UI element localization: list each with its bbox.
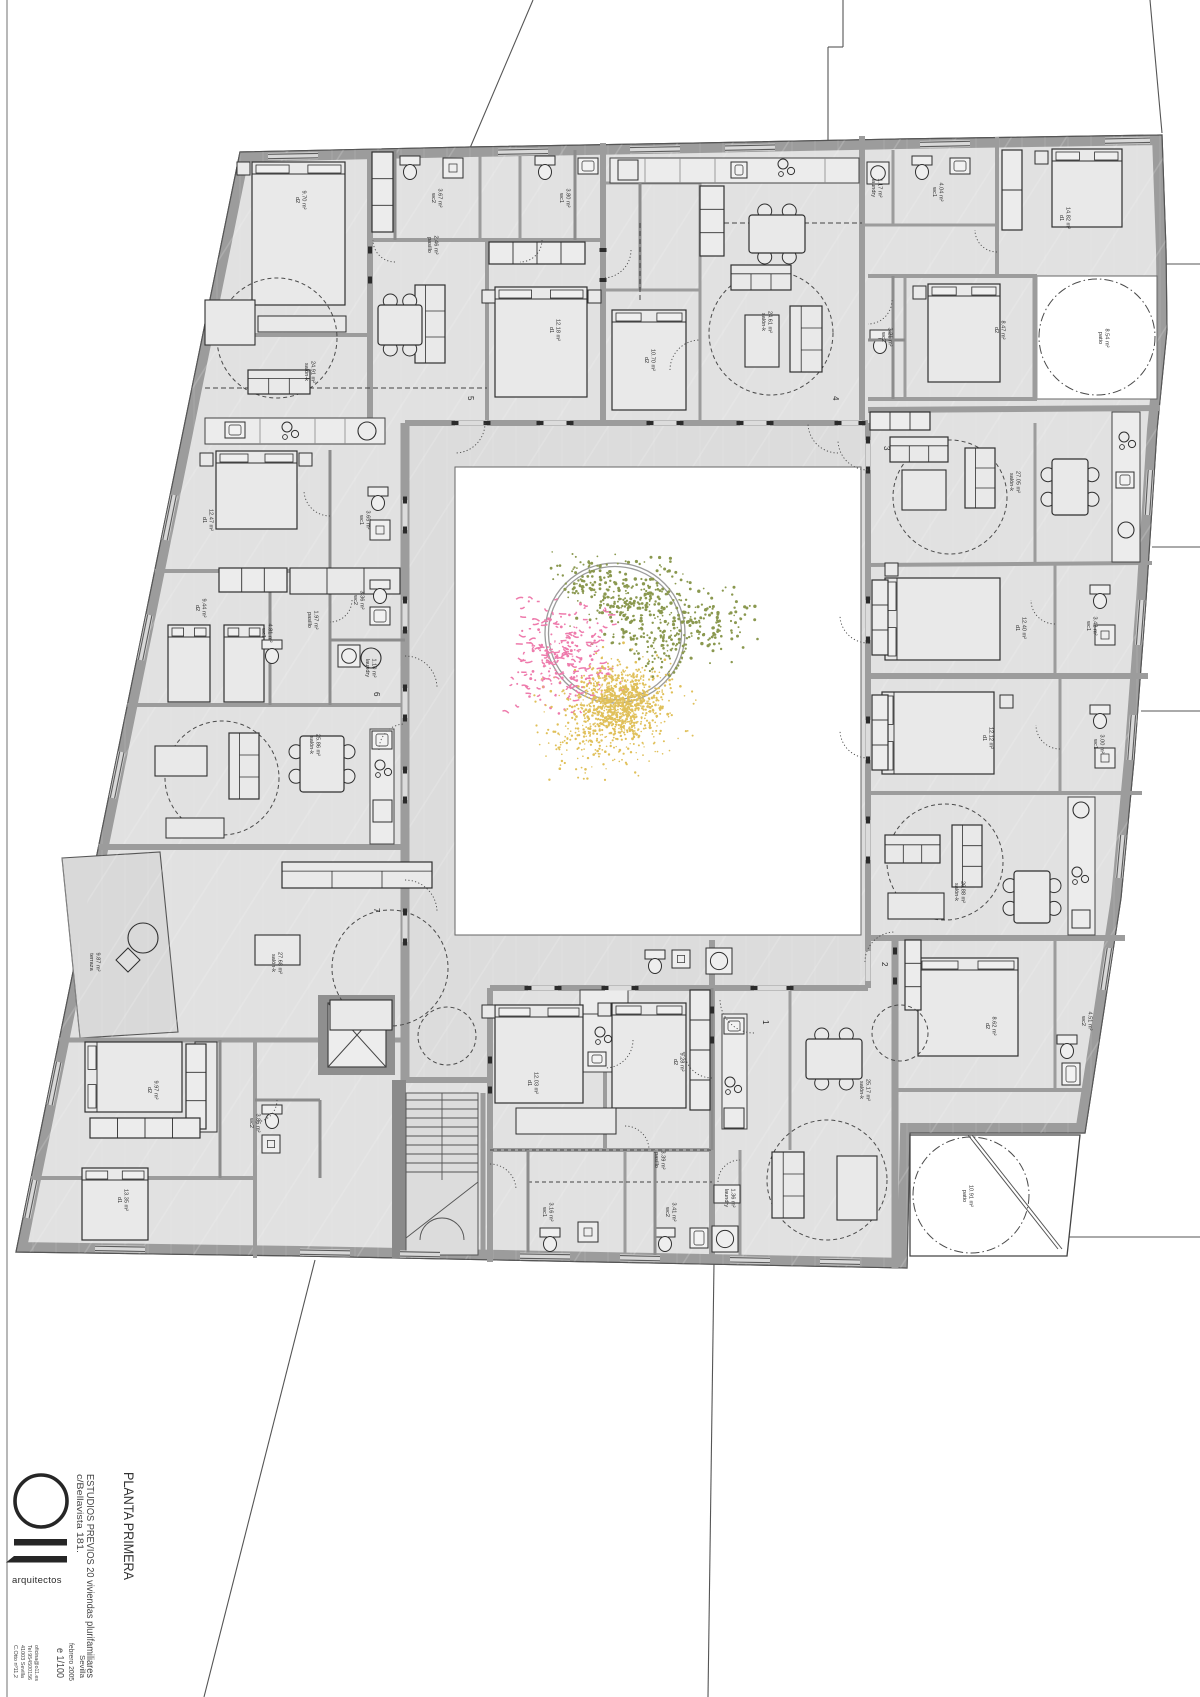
svg-text:patio: patio	[961, 1190, 967, 1202]
svg-text:4.81 m²: 4.81 m²	[266, 624, 272, 643]
svg-text:10.70 m²: 10.70 m²	[649, 349, 655, 371]
svg-text:8.62 m²: 8.62 m²	[990, 1017, 996, 1036]
svg-text:27.05 m²: 27.05 m²	[1014, 471, 1020, 493]
svg-text:d1: d1	[548, 327, 554, 333]
svg-text:pasillo: pasillo	[306, 612, 312, 628]
svg-text:d2: d2	[294, 197, 300, 203]
svg-text:wc2: wc2	[248, 1117, 254, 1128]
svg-text:12.40 m²: 12.40 m²	[1020, 617, 1026, 639]
svg-text:oficina@o11.es: oficina@o11.es	[33, 1645, 39, 1681]
svg-text:27.68 m²: 27.68 m²	[276, 952, 282, 974]
svg-text:2: 2	[880, 962, 889, 967]
svg-text:PLANTA PRIMERA: PLANTA PRIMERA	[121, 1472, 137, 1581]
svg-text:wc2: wc2	[430, 192, 436, 203]
svg-text:salón-k: salón-k	[858, 1081, 864, 1099]
svg-text:9.28 m²: 9.28 m²	[678, 1053, 684, 1072]
svg-text:4: 4	[831, 396, 840, 401]
svg-text:wc2: wc2	[352, 594, 358, 605]
svg-text:6: 6	[372, 692, 381, 697]
svg-text:24.61 m²: 24.61 m²	[766, 311, 772, 333]
svg-text:3.16 m²: 3.16 m²	[547, 1203, 553, 1222]
svg-text:3.80 m²: 3.80 m²	[564, 189, 570, 208]
svg-text:8.54 m²: 8.54 m²	[1103, 329, 1109, 348]
svg-text:C.Otto nº11,2: C.Otto nº11,2	[12, 1645, 19, 1678]
svg-text:1.10 m²: 1.10 m²	[370, 659, 376, 678]
svg-text:salón-k: salón-k	[270, 954, 276, 972]
svg-text:pasillo: pasillo	[426, 237, 432, 253]
svg-text:7: 7	[372, 908, 381, 913]
svg-text:salón-k: salón-k	[308, 736, 314, 754]
svg-text:3.42 m²: 3.42 m²	[1091, 617, 1097, 636]
svg-text:febrero 2005: febrero 2005	[67, 1643, 74, 1681]
svg-text:14.82 m²: 14.82 m²	[1064, 207, 1070, 229]
svg-text:d2: d2	[672, 1059, 678, 1065]
svg-text:3.21 m²: 3.21 m²	[886, 328, 892, 347]
svg-text:12.03 m²: 12.03 m²	[532, 1072, 538, 1094]
svg-text:3: 3	[882, 446, 891, 451]
svg-text:laundry: laundry	[870, 179, 876, 198]
svg-text:d1: d1	[981, 735, 987, 741]
svg-text:wc1: wc1	[541, 1206, 547, 1217]
svg-text:wc1: wc1	[558, 192, 564, 203]
svg-text:5: 5	[466, 396, 475, 401]
svg-text:25.86 m²: 25.86 m²	[314, 734, 320, 756]
svg-text:wc2: wc2	[880, 331, 886, 342]
svg-text:wc1: wc1	[1092, 738, 1098, 749]
svg-text:9.70 m²: 9.70 m²	[300, 191, 306, 210]
svg-text:10.91 m²: 10.91 m²	[967, 1185, 973, 1207]
svg-text:1: 1	[761, 1020, 770, 1025]
svg-text:1.36 m²: 1.36 m²	[729, 1189, 735, 1208]
svg-text:wc1: wc1	[1085, 620, 1091, 631]
svg-text:8.47 m²: 8.47 m²	[999, 321, 1005, 340]
svg-text:d2: d2	[146, 1087, 152, 1093]
svg-text:d2: d2	[643, 357, 649, 363]
svg-text:salón-k: salón-k	[760, 313, 766, 331]
svg-text:Sevilla: Sevilla	[78, 1655, 85, 1678]
svg-text:12.18 m²: 12.18 m²	[554, 319, 560, 341]
svg-text:3.41 m²: 3.41 m²	[670, 1203, 676, 1222]
svg-text:4.51 m²: 4.51 m²	[1086, 1012, 1092, 1031]
svg-text:12.47 m²: 12.47 m²	[207, 509, 213, 531]
svg-text:3.65 m²: 3.65 m²	[364, 511, 370, 530]
svg-text:d2: d2	[993, 327, 999, 333]
svg-text:Tel 954500156: Tel 954500156	[26, 1645, 32, 1680]
svg-text:patio: patio	[1097, 332, 1103, 344]
svg-text:d1: d1	[1014, 625, 1020, 631]
svg-text:9.87 m²: 9.87 m²	[94, 953, 100, 972]
svg-text:d2: d2	[984, 1023, 990, 1029]
svg-text:wc2: wc2	[1080, 1015, 1086, 1026]
svg-text:salón-k: salón-k	[303, 363, 309, 381]
svg-text:9.44 m²: 9.44 m²	[200, 599, 206, 618]
svg-text:4.04 m²: 4.04 m²	[937, 183, 943, 202]
svg-text:c/Bellavista 181.: c/Bellavista 181.	[75, 1474, 85, 1553]
svg-text:3.39 m²: 3.39 m²	[659, 1151, 665, 1170]
svg-text:3.00 m²: 3.00 m²	[1098, 735, 1104, 754]
svg-text:terraza: terraza	[88, 953, 94, 971]
svg-text:wc1: wc1	[358, 514, 364, 525]
svg-text:d1: d1	[1058, 215, 1064, 221]
svg-text:salón-k: salón-k	[953, 883, 959, 901]
svg-text:wc2: wc2	[664, 1206, 670, 1217]
svg-text:wc1: wc1	[931, 186, 937, 197]
svg-text:24.91 m²: 24.91 m²	[309, 361, 315, 383]
svg-text:wc1: wc1	[260, 627, 266, 638]
svg-text:26.88 m²: 26.88 m²	[959, 881, 965, 903]
svg-text:25.17 m²: 25.17 m²	[864, 1079, 870, 1101]
svg-text:1.17 m²: 1.17 m²	[876, 179, 882, 198]
svg-text:laundry: laundry	[364, 659, 370, 678]
svg-text:41003 Sevilla: 41003 Sevilla	[19, 1645, 25, 1679]
svg-text:12.12 m²: 12.12 m²	[987, 727, 993, 749]
svg-text:arquitectos: arquitectos	[12, 1575, 62, 1586]
svg-text:laundry: laundry	[723, 1189, 729, 1208]
svg-text:13.35 m²: 13.35 m²	[122, 1189, 128, 1211]
svg-text:3.36 m²: 3.36 m²	[358, 591, 364, 610]
svg-text:2.46 m²: 2.46 m²	[432, 236, 438, 255]
svg-text:1.97 m²: 1.97 m²	[312, 611, 318, 630]
svg-text:9.97 m²: 9.97 m²	[152, 1081, 158, 1100]
svg-text:d1: d1	[526, 1080, 532, 1086]
svg-text:salón-k: salón-k	[1008, 473, 1014, 491]
svg-text:d1: d1	[116, 1197, 122, 1203]
svg-text:3.85 m²: 3.85 m²	[254, 1114, 260, 1133]
svg-text:d1: d1	[201, 517, 207, 523]
svg-text:d2: d2	[194, 605, 200, 611]
svg-text:3.67 m²: 3.67 m²	[436, 189, 442, 208]
svg-text:pasillo: pasillo	[653, 1152, 659, 1168]
svg-text:e 1/100: e 1/100	[54, 1648, 65, 1678]
